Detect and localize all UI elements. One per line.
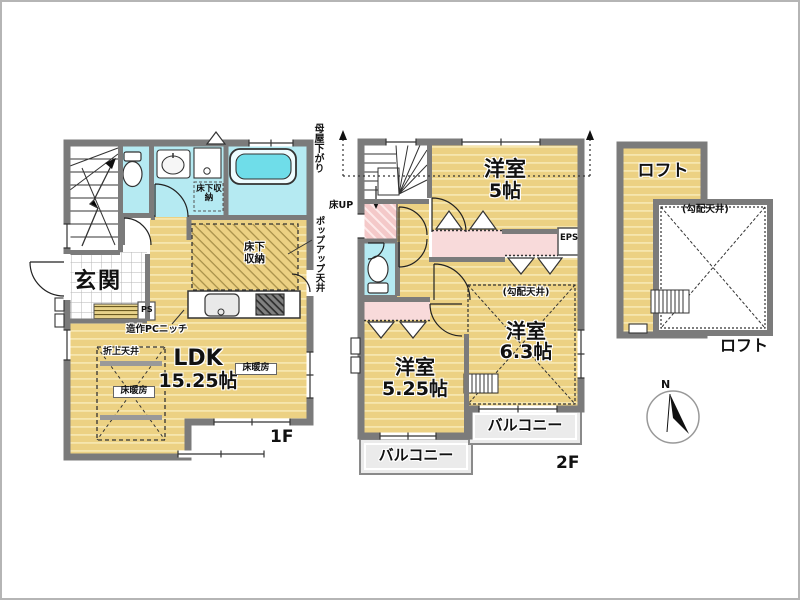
balcony-right-label: バルコニー — [481, 417, 569, 434]
genkan-label: 玄関 — [74, 270, 122, 294]
moyasagari-label: 母屋下がり — [312, 123, 323, 181]
washbasin — [157, 150, 190, 178]
room525-name-label: 洋室 — [370, 356, 460, 378]
toilet-f1-door — [124, 218, 151, 245]
f1-floor-label: 1F — [270, 428, 293, 447]
room525-size-label: 5.25帖 — [370, 379, 460, 400]
floorplan-canvas — [2, 2, 800, 600]
popup-ceiling-label: ポップアップ天井 — [313, 216, 323, 298]
floor-heating-badge-left: 床暖房 — [113, 386, 155, 398]
compass-north-label: N — [661, 379, 670, 391]
toilet-f1 — [123, 152, 142, 187]
room63-size-label: 6.3帖 — [484, 342, 568, 363]
underfloor-storage-kitchen-label: 床下収納 — [242, 242, 267, 265]
washer-pan — [194, 148, 221, 178]
room5-name-label: 洋室 — [465, 158, 545, 181]
eps-label: EPS — [560, 234, 578, 243]
entry-door — [30, 262, 64, 296]
ladder-room63 — [464, 374, 498, 393]
loft-sloped-ceiling-label: (勾配天井) — [682, 205, 729, 215]
ladder-loft — [651, 290, 689, 313]
loft-label-inside: ロフト — [636, 162, 690, 181]
raised-ceiling-label: 折上天井 — [103, 348, 139, 358]
closet-room5 — [432, 230, 505, 259]
room63-name-label: 洋室 — [484, 320, 568, 342]
niche-label: 造作PCニッチ — [126, 325, 187, 335]
floor-up-area — [363, 203, 397, 241]
loft-label-outside: ロフト — [720, 337, 768, 355]
underfloor-storage-washroom-label: 床下収納 — [196, 185, 222, 204]
f2-floor-label: 2F — [556, 454, 579, 473]
stove — [256, 294, 284, 315]
floor-heating-badge-right: 床暖房 — [235, 363, 277, 375]
bathtub — [230, 149, 296, 184]
balcony-left-label: バルコニー — [372, 447, 460, 464]
compass — [647, 391, 699, 443]
kitchen-sink — [205, 294, 239, 316]
f1-plan — [30, 132, 314, 458]
floorplan-image: 玄関 LDK 15.25帖 床暖房 床暖房 折上天井 床下収納 床下収納 造作P… — [0, 0, 800, 600]
sloped-ceiling-label-63: (勾配天井) — [482, 288, 570, 298]
room5-size-label: 5帖 — [465, 181, 545, 202]
ldk-name-label: LDK — [152, 347, 244, 371]
floor-up-label: 床UP — [329, 201, 353, 211]
hall-floor — [150, 217, 188, 293]
ps-label: PS — [141, 306, 153, 315]
toilet-f2 — [368, 256, 388, 293]
closet-room525 — [364, 300, 430, 320]
loft-hatch-opening — [629, 324, 647, 333]
